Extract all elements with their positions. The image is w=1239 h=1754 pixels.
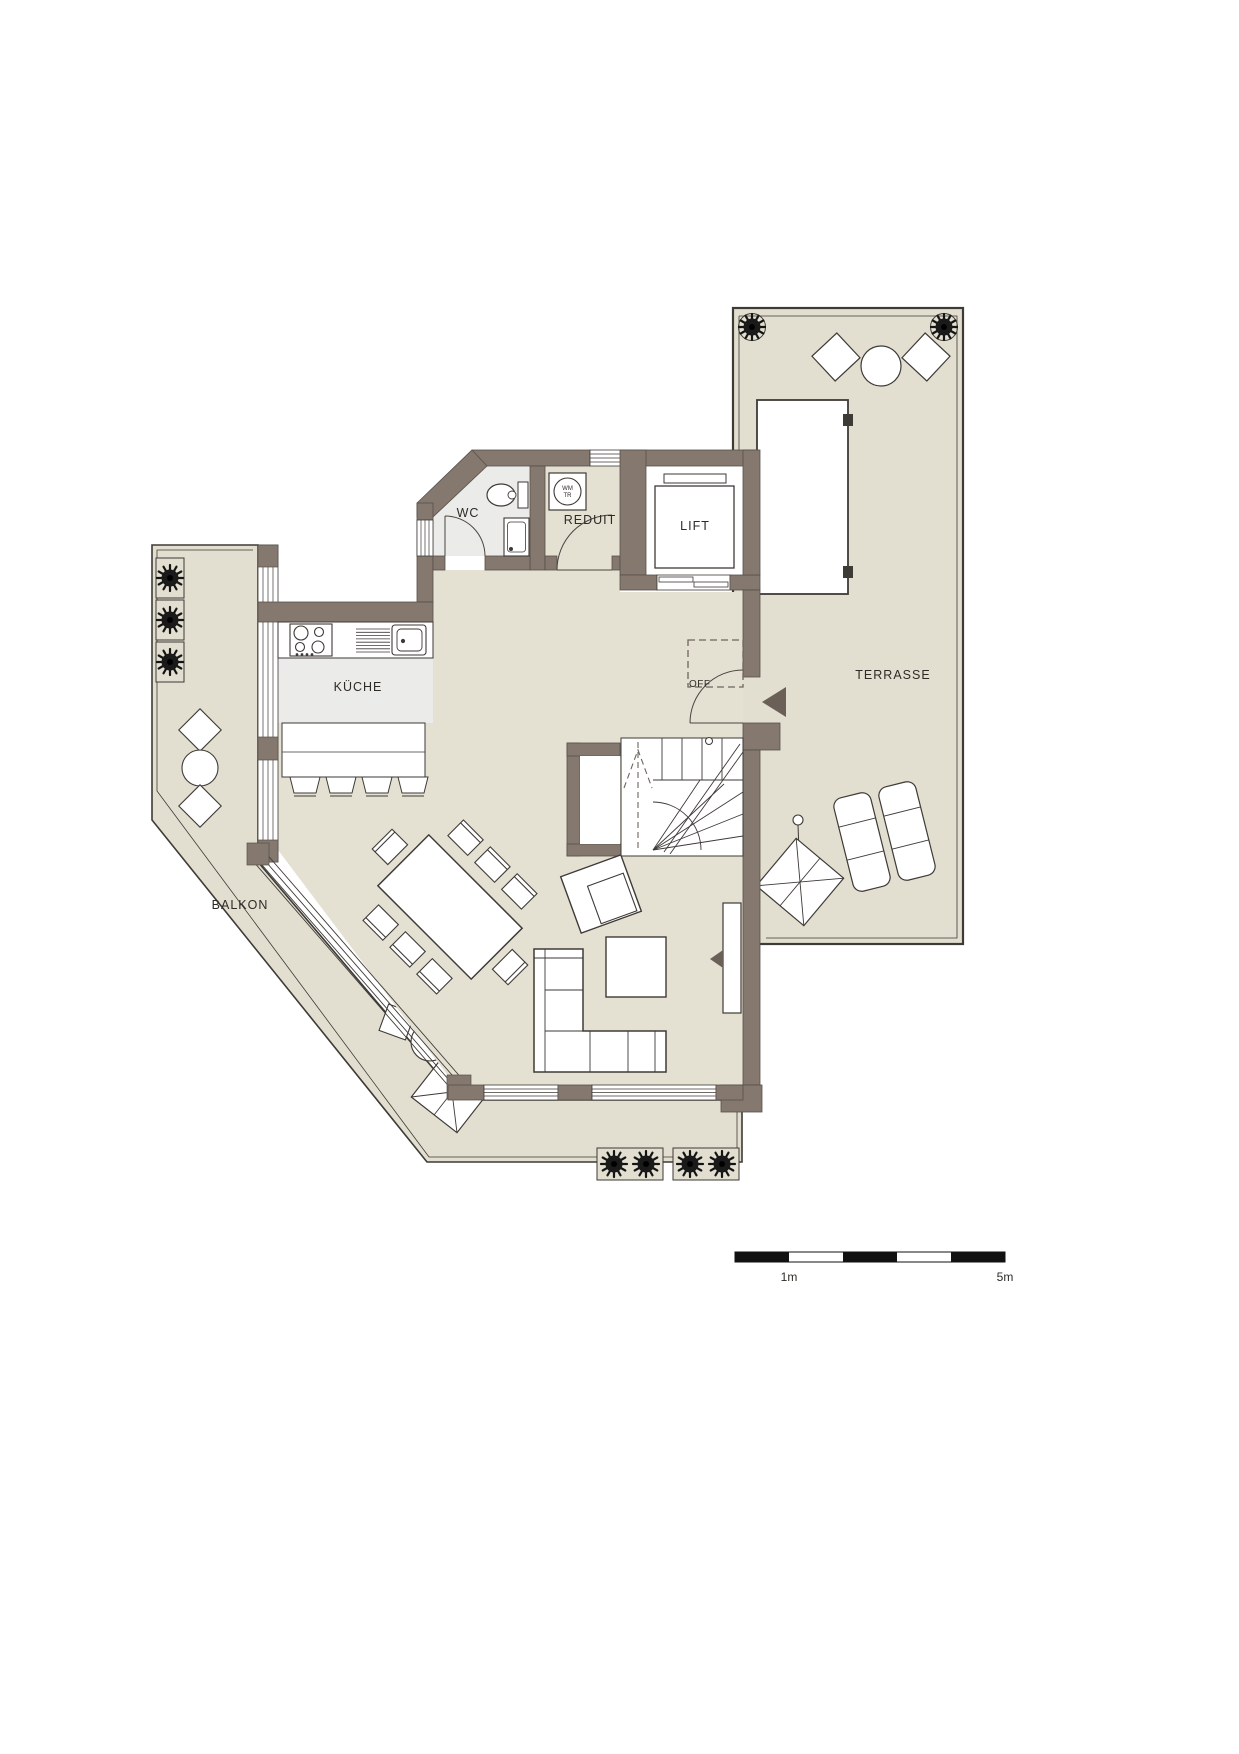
wall-top-left: [472, 450, 590, 466]
wc-window: [417, 520, 433, 556]
toilet-tank: [518, 482, 528, 508]
balcony-flower-boxes-left: [156, 558, 184, 682]
west-window-band: [258, 545, 278, 862]
scale-label-5m: 5m: [997, 1270, 1014, 1284]
shaft-tick-bottom: [843, 566, 853, 578]
label-reduit: REDUIT: [564, 513, 617, 527]
floor-plan-svg: WM TR: [0, 0, 1239, 1754]
coffee-table: [606, 937, 666, 997]
south-window-1: [484, 1085, 558, 1100]
wall-top-right: [627, 450, 757, 466]
label-lift: LIFT: [680, 519, 710, 533]
wall-south-a: [448, 1085, 484, 1100]
lift-door: [657, 575, 730, 590]
label-wc: WC: [457, 506, 480, 520]
label-terrasse: TERRASSE: [855, 668, 930, 682]
wall-reduit-south-b: [612, 556, 620, 570]
kitchen-island: [282, 723, 425, 777]
terrace: [733, 308, 963, 944]
window-pier: [247, 843, 269, 865]
wall-south-b: [558, 1085, 592, 1100]
shaft-tick-top: [843, 414, 853, 426]
stair-post: [706, 738, 713, 745]
window-pier: [258, 545, 278, 567]
lift-shaft-block: [757, 400, 853, 594]
wall-wc-reduit: [530, 466, 545, 570]
floor-plan-page: WM TR: [0, 0, 1239, 1754]
wall-wc-south-a: [433, 556, 445, 570]
south-window-2: [592, 1085, 716, 1100]
wall-wc-south-b: [485, 556, 530, 570]
scale-label-1m: 1m: [781, 1270, 798, 1284]
balcony-seating-group: [179, 709, 221, 827]
wall-kitchen-north: [258, 602, 433, 622]
washer-dryer: WM TR: [549, 473, 586, 510]
label-kueche: KÜCHE: [334, 680, 383, 694]
washer-label-tr: TR: [564, 493, 573, 499]
wall-stair-south-stub: [567, 844, 621, 856]
label-balkon: BALKON: [212, 898, 269, 912]
wall-stair-north-stub: [567, 743, 620, 756]
wall-south-c: [716, 1085, 743, 1100]
stair-void: [580, 756, 620, 844]
wall-east-corridor: [743, 590, 760, 677]
wall-lift-south: [620, 575, 657, 590]
window-pier: [258, 737, 278, 760]
wall-corner: [730, 575, 760, 590]
terrace-round-table: [861, 346, 901, 386]
wall-reduit-lift: [620, 450, 646, 575]
label-off: OFF: [689, 679, 711, 690]
wall-reduit-south-a: [545, 556, 557, 570]
wall-stair-west: [567, 743, 580, 856]
washer-label-wm: WM: [562, 486, 573, 492]
wall-east-lower: [743, 750, 760, 1085]
scale-bar: 1m 5m: [735, 1252, 1013, 1284]
wall-east-upper: [743, 450, 760, 575]
wall-entrance-pier: [743, 723, 780, 750]
